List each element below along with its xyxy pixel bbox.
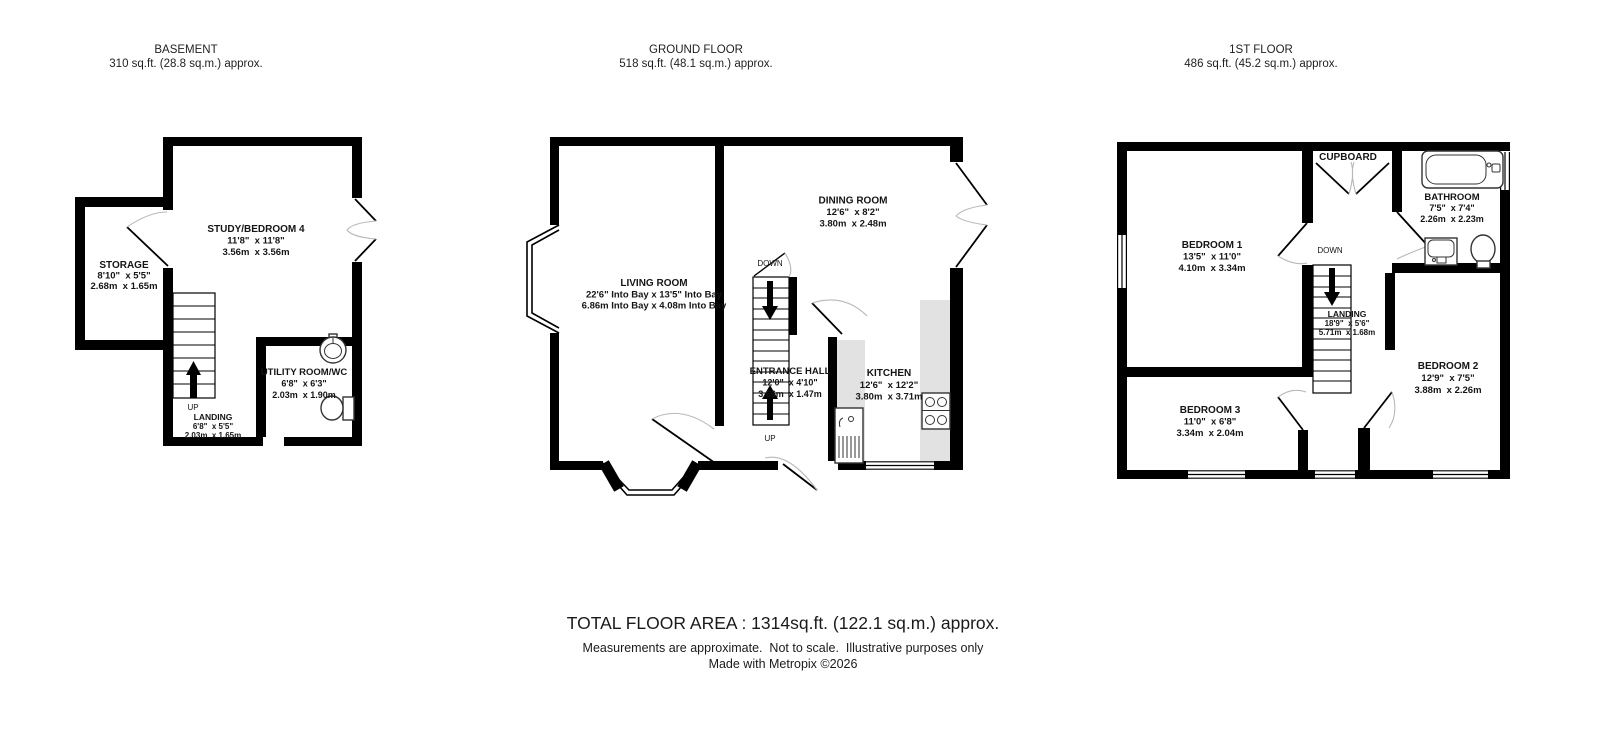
first-floor-plan: BEDROOM 1 13'5" x 11'0" 4.10m x 3.34m CU… xyxy=(1080,130,1520,490)
kitchen-name: KITCHEN xyxy=(867,368,911,379)
ground-floor-title: GROUND FLOOR xyxy=(546,43,846,57)
total-floor-area: TOTAL FLOOR AREA : 1314sq.ft. (122.1 sq.… xyxy=(433,613,1133,634)
bedroom1-window xyxy=(1117,235,1127,288)
first-landing-dims-ft: 18'9" x 5'6" xyxy=(1325,319,1370,328)
disclaimer-text: Measurements are approximate. Not to sca… xyxy=(433,640,1133,656)
stairs-up-arrow xyxy=(190,375,197,398)
bedroom3-door xyxy=(1278,390,1306,430)
basement-header: BASEMENT 310 sq.ft. (28.8 sq.m.) approx. xyxy=(36,43,336,71)
room-label-bathroom: BATHROOM 7'5" x 7'4" 2.26m x 2.23m xyxy=(1420,192,1484,224)
bathroom-dims-ft: 7'5" x 7'4" xyxy=(1429,203,1474,213)
bedroom3-name: BEDROOM 3 xyxy=(1180,405,1241,416)
utility-dims-ft: 6'8" x 6'3" xyxy=(281,379,326,389)
basement-title: BASEMENT xyxy=(36,43,336,57)
basement-landing-name: LANDING xyxy=(194,412,233,422)
footer: TOTAL FLOOR AREA : 1314sq.ft. (122.1 sq.… xyxy=(433,613,1133,672)
cupboard-doors xyxy=(1316,162,1389,194)
first-down-label: DOWN xyxy=(1317,246,1343,255)
bathroom-dims-m: 2.26m x 2.23m xyxy=(1420,214,1484,224)
stairs-down-arrow xyxy=(1329,268,1335,292)
stairs-up-arrow xyxy=(767,399,773,420)
kitchen-dims-m: 3.80m x 3.71m xyxy=(855,392,922,403)
storage-dims-m: 2.68m x 1.65m xyxy=(90,281,157,292)
basement-area: 310 sq.ft. (28.8 sq.m.) approx. xyxy=(36,57,336,71)
living-room-door xyxy=(652,413,715,463)
kitchen-sink-unit-icon xyxy=(835,408,863,463)
room-label-kitchen: KITCHEN 12'6" x 12'2" 3.80m x 3.71m xyxy=(855,368,922,403)
utility-dims-m: 2.03m x 1.90m xyxy=(272,390,336,400)
first-landing-dims-m: 5.71m x 1.68m xyxy=(1319,328,1375,337)
landing-window xyxy=(1315,470,1355,479)
room-label-dining-room: DINING ROOM 12'6" x 8'2" 3.80m x 2.48m xyxy=(819,196,888,230)
bedroom3-dims-m: 3.34m x 2.04m xyxy=(1176,428,1243,439)
basement-landing-dims-ft: 6'8" x 5'5" xyxy=(193,422,234,431)
room-label-bedroom2: BEDROOM 2 12'9" x 7'5" 3.88m x 2.26m xyxy=(1414,361,1481,396)
dining-room-dims-ft: 12'6" x 8'2" xyxy=(826,207,879,218)
kitchen-window xyxy=(866,461,934,470)
ground-floor-header: GROUND FLOOR 518 sq.ft. (48.1 sq.m.) app… xyxy=(546,43,846,71)
bathroom-sink-icon xyxy=(1425,238,1457,265)
first-floor-area: 486 sq.ft. (45.2 sq.m.) approx. xyxy=(1111,57,1411,71)
room-label-bedroom3: BEDROOM 3 11'0" x 6'8" 3.34m x 2.04m xyxy=(1176,405,1243,439)
bedroom3-dims-ft: 11'0" x 6'8" xyxy=(1184,417,1237,428)
bedroom1-name: BEDROOM 1 xyxy=(1182,240,1243,251)
bedroom3-window xyxy=(1188,470,1245,479)
room-label-study-bedroom4: STUDY/BEDROOM 4 11'8" x 11'8" 3.56m x 3.… xyxy=(207,224,305,258)
room-label-utility: UTILITY ROOM/WC 6'8" x 6'3" 2.03m x 1.90… xyxy=(261,367,348,400)
room-label-bedroom1: BEDROOM 1 13'5" x 11'0" 4.10m x 3.34m xyxy=(1178,240,1245,274)
ground-floor-area: 518 sq.ft. (48.1 sq.m.) approx. xyxy=(546,57,846,71)
storage-name: STORAGE xyxy=(99,260,149,271)
entrance-hall-dims-ft: 12'0" x 4'10" xyxy=(762,378,817,388)
study-double-door xyxy=(347,199,376,261)
entrance-hall-name: ENTRANCE HALL xyxy=(750,366,831,377)
room-label-storage: STORAGE 8'10" x 5'5" 2.68m x 1.65m xyxy=(90,260,157,292)
storage-dims-ft: 8'10" x 5'5" xyxy=(97,271,150,282)
bedroom1-dims-m: 4.10m x 3.34m xyxy=(1178,263,1245,274)
credit-text: Made with Metropix ©2026 xyxy=(433,656,1133,672)
dining-french-doors xyxy=(956,163,987,267)
living-room-dims-m: 6.86m Into Bay x 4.08m Into Bay xyxy=(582,301,727,312)
first-floor-header: 1ST FLOOR 486 sq.ft. (45.2 sq.m.) approx… xyxy=(1111,43,1411,71)
kitchen-door xyxy=(812,300,867,334)
living-room-dims-ft: 22'6" Into Bay x 13'5" Into Bay xyxy=(586,290,723,301)
study-dims-m: 3.56m x 3.56m xyxy=(222,247,289,258)
dining-room-name: DINING ROOM xyxy=(819,196,888,207)
study-dims-ft: 11'8" x 11'8" xyxy=(227,236,284,247)
bathroom-name: BATHROOM xyxy=(1424,192,1479,203)
first-landing-name: LANDING xyxy=(1328,309,1367,319)
living-room-name: LIVING ROOM xyxy=(620,278,687,289)
room-label-living-room: LIVING ROOM 22'6" Into Bay x 13'5" Into … xyxy=(582,278,727,312)
first-floor-title: 1ST FLOOR xyxy=(1111,43,1411,57)
ground-down-label: DOWN xyxy=(757,259,783,268)
bedroom2-door xyxy=(1364,392,1395,428)
storage-door xyxy=(127,212,168,266)
room-label-first-landing: LANDING 18'9" x 5'6" 5.71m x 1.68m xyxy=(1319,309,1375,337)
bedroom2-dims-m: 3.88m x 2.26m xyxy=(1414,385,1481,396)
living-room-bay-window-bottom xyxy=(603,463,698,495)
kitchen-dims-ft: 12'6" x 12'2" xyxy=(860,380,918,391)
ground-floor-stairs xyxy=(753,253,791,425)
living-room-bay-window-left xyxy=(527,225,559,333)
bedroom1-dims-ft: 13'5" x 11'0" xyxy=(1183,252,1241,263)
entrance-hall-dims-m: 3.66m x 1.47m xyxy=(758,389,822,399)
bedroom1-door xyxy=(1278,223,1307,264)
dining-room-dims-m: 3.80m x 2.48m xyxy=(819,219,886,230)
room-label-entrance-hall: ENTRANCE HALL 12'0" x 4'10" 3.66m x 1.47… xyxy=(750,366,831,399)
bedroom2-dims-ft: 12'9" x 7'5" xyxy=(1421,373,1474,384)
cupboard-label: CUPBOARD xyxy=(1319,152,1377,163)
basement-landing-dims-m: 2.03m x 1.65m xyxy=(185,431,241,440)
basement-stairs xyxy=(173,293,215,398)
basement-up-label: UP xyxy=(187,403,198,412)
ground-up-label: UP xyxy=(764,434,775,443)
ground-floor-plan: LIVING ROOM 22'6" Into Bay x 13'5" Into … xyxy=(505,130,1005,530)
basement-plan: STORAGE 8'10" x 5'5" 2.68m x 1.65m STUDY… xyxy=(70,130,380,460)
room-label-basement-landing: LANDING 6'8" x 5'5" 2.03m x 1.65m xyxy=(185,412,241,440)
floorplan-page: BASEMENT 310 sq.ft. (28.8 sq.m.) approx.… xyxy=(0,0,1600,729)
stove-icon xyxy=(922,393,950,429)
utility-name: UTILITY ROOM/WC xyxy=(261,367,348,378)
bedroom2-window xyxy=(1433,470,1488,479)
bedroom2-name: BEDROOM 2 xyxy=(1418,361,1479,372)
stairs-down-arrow xyxy=(767,281,773,306)
study-name: STUDY/BEDROOM 4 xyxy=(207,224,305,235)
bathtub-icon xyxy=(1422,151,1503,188)
